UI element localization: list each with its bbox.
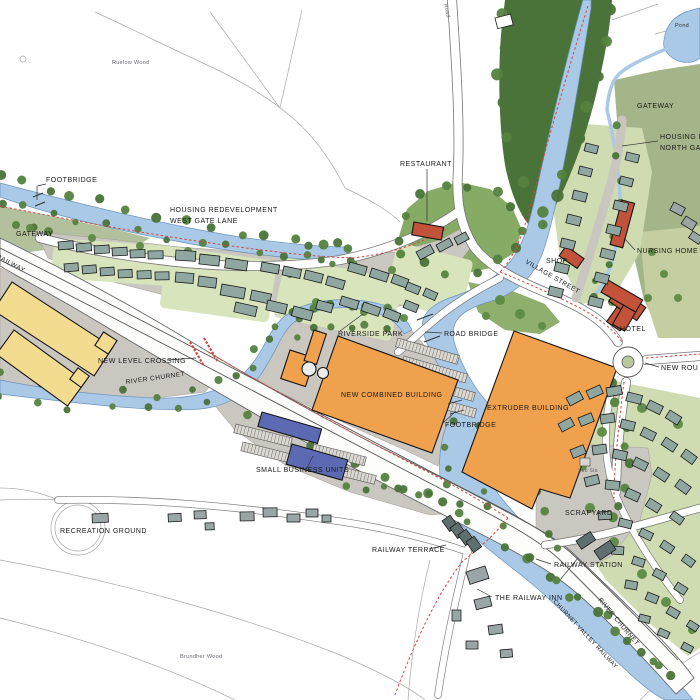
tree — [272, 323, 279, 330]
house — [168, 513, 181, 522]
tree — [243, 411, 252, 420]
label-new-combined-building: NEW COMBINED BUILDING — [341, 392, 443, 399]
label-housing-west-2: WEST GATE LANE — [170, 218, 238, 225]
tree — [557, 170, 567, 180]
tree — [19, 201, 27, 209]
house — [240, 512, 254, 521]
tree — [604, 4, 616, 16]
tree — [473, 269, 482, 278]
label-hotel: HOTEL — [620, 326, 646, 333]
tree — [511, 243, 521, 253]
house — [466, 566, 489, 585]
tree — [601, 36, 612, 47]
tree — [363, 487, 370, 494]
label-wood-sw: Brundher Wood — [180, 654, 222, 660]
tree — [456, 500, 463, 507]
label-railway-terrace: RAILWAY TERRACE — [372, 547, 445, 554]
tree — [612, 152, 619, 159]
tree — [266, 335, 273, 342]
tree — [491, 68, 503, 80]
label-road-bridge: ROAD BRIDGE — [444, 331, 499, 338]
house — [488, 624, 503, 635]
label-railway-station: RAILWAY STATION — [554, 562, 623, 569]
tree — [581, 101, 593, 113]
tree — [395, 237, 404, 246]
tree — [443, 480, 451, 488]
tree — [594, 72, 604, 82]
tree — [199, 239, 207, 247]
label-restaurant: RESTAURANT — [400, 161, 452, 168]
tree — [613, 121, 621, 129]
tree — [674, 294, 682, 302]
tree — [381, 483, 387, 489]
house — [148, 251, 163, 259]
house — [94, 245, 110, 254]
house — [466, 641, 478, 649]
tree — [250, 365, 257, 372]
tree — [222, 241, 229, 248]
tree — [0, 170, 6, 180]
tree — [493, 254, 503, 264]
house — [137, 271, 151, 279]
tree — [109, 403, 115, 409]
tree — [319, 240, 329, 250]
tree — [402, 212, 410, 220]
tree — [259, 230, 269, 240]
house — [322, 515, 331, 522]
tree — [119, 386, 127, 394]
tree — [163, 237, 170, 244]
tree — [294, 334, 300, 340]
house — [263, 508, 277, 517]
house — [76, 243, 92, 252]
tree — [455, 509, 464, 518]
tree — [574, 593, 581, 600]
label-gateway-w: GATEWAY — [16, 231, 53, 238]
tree — [51, 210, 58, 217]
tree — [537, 206, 548, 217]
masterplan-svg: Ruelow Wood Road Pond FOOTBRIDGE GATEWAY… — [0, 0, 700, 700]
tree — [482, 312, 490, 320]
label-new-road: NEW ROU — [661, 365, 698, 372]
tree — [522, 199, 533, 210]
house — [58, 241, 74, 250]
label-riverside-park: RIVERSIDE PARK — [338, 331, 403, 338]
house — [625, 580, 638, 590]
house — [205, 523, 214, 530]
tree — [610, 627, 620, 637]
tree — [538, 220, 548, 230]
tree — [189, 386, 196, 393]
tree — [637, 403, 647, 413]
tree — [506, 155, 518, 167]
tree — [637, 648, 646, 657]
tree — [396, 250, 405, 259]
tree — [502, 132, 512, 142]
tree — [394, 485, 402, 493]
tree — [204, 399, 211, 406]
label-new-level-crossing: NEW LEVEL CROSSING — [98, 358, 186, 365]
tree — [47, 187, 55, 195]
tree — [400, 314, 408, 322]
tree — [565, 593, 574, 602]
tree — [175, 405, 182, 412]
house — [130, 249, 145, 258]
house — [155, 272, 169, 280]
house — [198, 276, 217, 288]
tree — [464, 518, 471, 525]
tree — [493, 187, 503, 197]
tree — [481, 488, 487, 494]
house — [100, 267, 115, 276]
tree — [644, 294, 652, 302]
house — [82, 265, 97, 274]
tree — [574, 133, 585, 144]
label-housing-north-2: NORTH GATE — [660, 145, 700, 152]
tree — [610, 398, 620, 408]
tree — [495, 295, 505, 305]
tree — [95, 194, 104, 203]
sub-station — [580, 458, 590, 466]
label-extruder-building: EXTRUDER BUILDING — [487, 405, 569, 412]
storage-tank — [302, 362, 316, 376]
tree — [518, 227, 527, 236]
tree — [344, 244, 353, 253]
tree — [388, 266, 396, 274]
house — [199, 254, 220, 266]
house — [92, 513, 108, 523]
house — [175, 250, 196, 261]
house — [600, 413, 615, 424]
tree — [329, 261, 335, 267]
tree — [441, 444, 448, 451]
tree — [360, 321, 368, 329]
house — [175, 272, 194, 284]
storage-tank — [318, 368, 329, 379]
house — [64, 263, 79, 272]
tree — [614, 502, 622, 510]
tree — [515, 309, 525, 319]
tree — [661, 597, 671, 607]
tree — [64, 191, 74, 201]
pond — [664, 8, 700, 62]
tree — [552, 576, 560, 584]
tree — [660, 270, 668, 278]
tree — [64, 406, 71, 413]
tree — [250, 345, 258, 353]
label-nursing-home: NURSING HOME — [637, 248, 698, 255]
label-housing-north-1: HOUSING RE — [660, 134, 700, 141]
tree — [445, 465, 452, 472]
tree — [153, 394, 160, 401]
tree — [304, 242, 312, 250]
tree — [500, 43, 510, 53]
house — [287, 514, 300, 522]
tree — [484, 502, 492, 510]
house — [452, 610, 461, 621]
tree — [343, 482, 351, 490]
tree — [650, 658, 658, 666]
tree — [215, 376, 223, 384]
tree — [239, 231, 247, 239]
label-small-business-units: SMALL BUSINESS UNITS — [256, 467, 349, 474]
tree — [518, 176, 529, 187]
label-footbridge-c: FOOTBRIDGE — [445, 422, 496, 429]
tree — [88, 234, 96, 242]
tree — [501, 543, 509, 551]
label-gateway-ne: GATEWAY — [637, 103, 674, 110]
tree — [506, 202, 515, 211]
tree — [333, 238, 342, 247]
tree — [551, 190, 563, 202]
tree — [441, 270, 449, 278]
tree — [17, 176, 26, 185]
tree — [442, 181, 451, 190]
tree — [327, 323, 334, 330]
house — [118, 269, 132, 278]
tree — [593, 607, 603, 617]
tree — [438, 497, 447, 506]
tree — [621, 442, 629, 450]
tree — [381, 473, 390, 482]
house — [605, 480, 620, 490]
tree — [151, 213, 161, 223]
label-housing-west-1: HOUSING REDEVELOPMENT — [170, 207, 278, 214]
tree — [498, 97, 509, 108]
tree — [318, 256, 325, 263]
roundabout — [613, 347, 643, 377]
label-the-railway-inn: THE RAILWAY INN — [495, 595, 563, 602]
label-footbridge-nw: FOOTBRIDGE — [46, 177, 97, 184]
house — [194, 511, 206, 519]
tree — [426, 490, 433, 497]
tree — [415, 189, 425, 199]
tree — [291, 234, 300, 243]
tree — [145, 403, 153, 411]
tree — [136, 242, 144, 250]
label-pond: Pond — [675, 23, 689, 29]
house — [500, 649, 513, 658]
tree — [463, 184, 471, 192]
tree — [554, 545, 561, 552]
label-ruelow-wood: Ruelow Wood — [112, 60, 149, 66]
tree — [34, 399, 42, 407]
tree — [540, 507, 549, 516]
house — [112, 247, 127, 256]
tree — [280, 252, 288, 260]
label-shop: SHOP — [546, 258, 568, 265]
tree — [606, 261, 613, 268]
label-sub-sta: Sub Sta — [578, 468, 598, 474]
tree — [545, 530, 553, 538]
house — [474, 596, 492, 610]
masterplan-map: Ruelow Wood Road Pond FOOTBRIDGE GATEWAY… — [0, 0, 700, 700]
house — [592, 444, 607, 455]
tree — [526, 553, 535, 562]
tree — [415, 491, 422, 498]
tree — [538, 322, 546, 330]
tree — [637, 569, 647, 579]
tree — [121, 206, 130, 215]
label-scrapyard: SCRAPYARD — [565, 510, 613, 517]
tree — [12, 221, 20, 229]
house — [306, 509, 318, 517]
tree — [666, 671, 675, 680]
tree — [233, 372, 240, 379]
tree — [597, 427, 607, 437]
label-recreation-ground: RECREATION GROUND — [60, 528, 147, 535]
